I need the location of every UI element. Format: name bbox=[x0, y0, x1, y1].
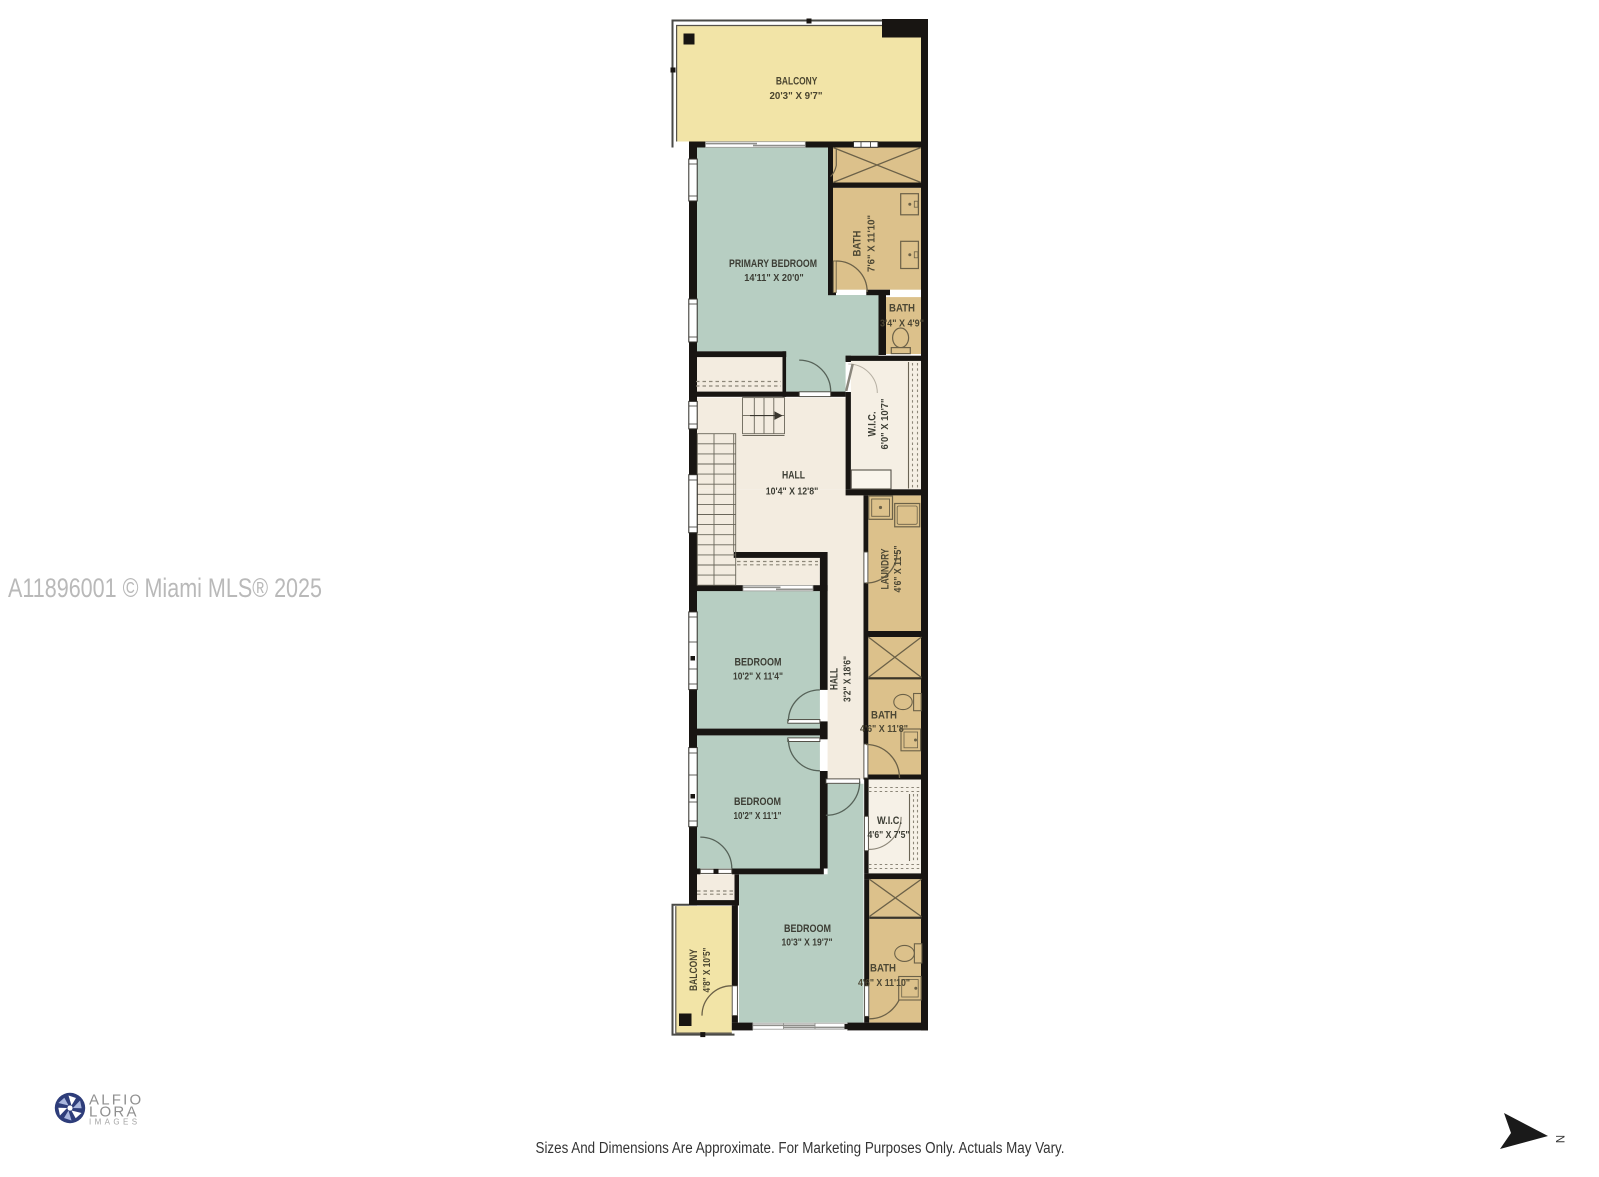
svg-text:4'6" X 7'5": 4'6" X 7'5" bbox=[868, 829, 910, 841]
svg-text:10'2" X 11'1": 10'2" X 11'1" bbox=[734, 810, 782, 822]
svg-text:10'4" X 12'8": 10'4" X 12'8" bbox=[766, 486, 819, 498]
svg-text:LAUNDRY: LAUNDRY bbox=[880, 548, 892, 590]
svg-text:BALCONY: BALCONY bbox=[688, 948, 700, 991]
svg-text:BEDROOM: BEDROOM bbox=[735, 657, 782, 669]
svg-text:4'6" X 11'5": 4'6" X 11'5" bbox=[892, 545, 904, 592]
svg-text:7'6" X 11'10": 7'6" X 11'10" bbox=[866, 215, 878, 272]
svg-text:HALL: HALL bbox=[829, 668, 841, 690]
svg-text:BEDROOM: BEDROOM bbox=[784, 923, 831, 935]
svg-text:PRIMARY BEDROOM: PRIMARY BEDROOM bbox=[729, 258, 817, 270]
svg-text:A11896001 © Miami MLS® 2025: A11896001 © Miami MLS® 2025 bbox=[8, 573, 322, 603]
svg-text:Sizes And Dimensions Are Appro: Sizes And Dimensions Are Approximate. Fo… bbox=[536, 1140, 1065, 1157]
svg-text:4'6" X 11'10": 4'6" X 11'10" bbox=[858, 977, 910, 989]
svg-text:14'11" X 20'0": 14'11" X 20'0" bbox=[744, 272, 804, 284]
svg-text:20'3" X 9'7": 20'3" X 9'7" bbox=[770, 90, 823, 102]
svg-text:3'2" X 18'6": 3'2" X 18'6" bbox=[842, 656, 854, 702]
svg-text:3'4" X 4'9": 3'4" X 4'9" bbox=[880, 318, 924, 330]
svg-text:BATH: BATH bbox=[852, 230, 864, 256]
svg-text:10'3" X 19'7": 10'3" X 19'7" bbox=[782, 937, 833, 949]
svg-text:BEDROOM: BEDROOM bbox=[734, 796, 781, 808]
svg-text:IMAGES: IMAGES bbox=[89, 1118, 141, 1127]
svg-text:4'8" X 10'5": 4'8" X 10'5" bbox=[701, 947, 713, 992]
svg-text:W.I.C.: W.I.C. bbox=[877, 815, 902, 827]
svg-text:6'0" X 10'7": 6'0" X 10'7" bbox=[879, 398, 891, 449]
svg-text:BATH: BATH bbox=[871, 710, 897, 722]
svg-text:HALL: HALL bbox=[782, 470, 805, 482]
svg-text:BATH: BATH bbox=[870, 963, 896, 975]
svg-text:W.I.C.: W.I.C. bbox=[867, 412, 879, 437]
svg-text:BATH: BATH bbox=[889, 303, 915, 315]
svg-text:N: N bbox=[1553, 1135, 1565, 1143]
svg-text:4'6" X 11'8": 4'6" X 11'8" bbox=[860, 723, 908, 735]
svg-text:10'2" X 11'4": 10'2" X 11'4" bbox=[733, 671, 783, 683]
svg-text:BALCONY: BALCONY bbox=[776, 76, 818, 88]
